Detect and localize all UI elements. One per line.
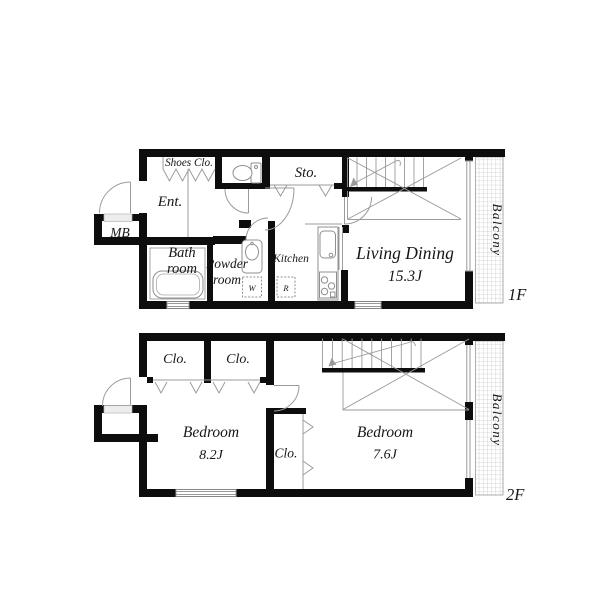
- left-door-arc-2f: [103, 378, 131, 406]
- floorplan-canvas: Shoes Clo. Ent. MB Sto. Bath room Powder…: [0, 0, 600, 600]
- living-dining-label: Living Dining: [355, 243, 454, 263]
- stair-direction-line-1f: [353, 160, 400, 184]
- floor-2f-label: 2F: [506, 485, 525, 504]
- living-window: [355, 302, 381, 309]
- toilet-fixture: [233, 163, 261, 183]
- bathroom-label-line2: room: [167, 261, 197, 277]
- stair-void-cross-2f: [343, 339, 469, 410]
- living-dining-size: 15.3J: [388, 268, 423, 285]
- bedroom-right-size: 7.6J: [373, 448, 398, 463]
- floorplan-page: Shoes Clo. Ent. MB Sto. Bath room Powder…: [0, 0, 600, 600]
- powder-room-label-line2: room: [213, 272, 241, 287]
- entrance-door-panel: [104, 214, 132, 222]
- floor-1f-plan: Shoes Clo. Ent. MB Sto. Bath room Powder…: [94, 149, 527, 309]
- bedroom-left-label: Bedroom: [183, 424, 239, 441]
- balcony-2f-label: Balcony: [490, 393, 505, 446]
- center-closet-folding-doors: [303, 414, 313, 489]
- entrance-label: Ent.: [157, 194, 183, 210]
- 2f-windows: [176, 345, 473, 497]
- bedroom-right-label: Bedroom: [357, 424, 413, 441]
- bedroom-left-window: [176, 490, 236, 497]
- stair-direction-line-2f: [331, 342, 416, 364]
- fridge-label: R: [282, 283, 289, 293]
- closet-left-label: Clo.: [163, 352, 187, 367]
- shoes-closet-label: Shoes Clo.: [165, 157, 213, 169]
- meter-box-label: MB: [109, 225, 130, 240]
- floor-2f-plan: Clo. Clo. Clo. Bedroom 8.2J Bedroom 7.6J…: [94, 333, 525, 504]
- bedroom-door-arc-2f: [274, 386, 299, 412]
- kitchen-label: Kitchen: [272, 253, 309, 265]
- kitchen-counter-fixture: [318, 227, 338, 300]
- stair-treads-1f: [348, 158, 424, 188]
- 2f-walls: [94, 333, 505, 497]
- powder-room-label-line1: Powder: [205, 256, 249, 271]
- entrance-door-arc: [100, 182, 131, 213]
- storage-label: Sto.: [295, 165, 317, 181]
- 2f-stairs: [323, 339, 470, 411]
- bedroom-left-size: 8.2J: [199, 448, 224, 463]
- closet-center-label: Clo.: [275, 446, 298, 461]
- bathroom-label-line1: Bath: [168, 245, 195, 261]
- left-door-panel-2f: [104, 406, 132, 414]
- toilet-door-arc: [225, 189, 249, 213]
- washer-label: W: [248, 283, 256, 293]
- storage-folding-doors: [270, 185, 334, 196]
- floor-1f-label: 1F: [508, 285, 527, 304]
- bath-window: [167, 302, 189, 309]
- balcony-1f-label: Balcony: [490, 203, 505, 256]
- closet-right-label: Clo.: [226, 352, 250, 367]
